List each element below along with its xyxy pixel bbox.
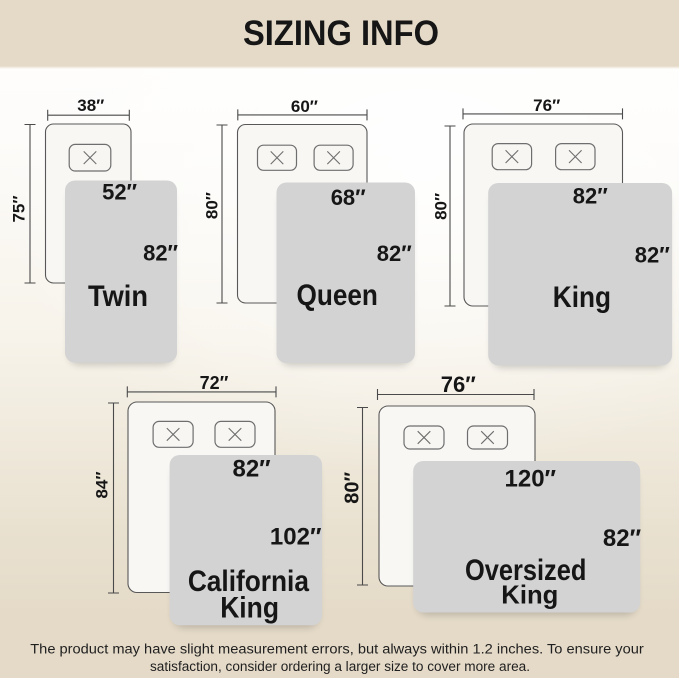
svg-text:King: King bbox=[501, 579, 558, 609]
svg-text:Twin: Twin bbox=[88, 280, 148, 313]
svg-text:Queen: Queen bbox=[297, 279, 378, 312]
svg-text:82″: 82″ bbox=[573, 183, 608, 208]
svg-text:82″: 82″ bbox=[143, 241, 178, 266]
svg-text:SIZING INFO: SIZING INFO bbox=[243, 14, 439, 53]
svg-text:60″: 60″ bbox=[291, 97, 318, 116]
svg-text:52″: 52″ bbox=[102, 180, 137, 205]
svg-text:82″: 82″ bbox=[377, 241, 412, 266]
svg-text:King: King bbox=[220, 591, 279, 624]
svg-text:82″: 82″ bbox=[232, 455, 271, 482]
svg-text:80″: 80″ bbox=[203, 192, 222, 219]
svg-text:80″: 80″ bbox=[432, 193, 451, 220]
svg-text:82″: 82″ bbox=[635, 242, 670, 267]
svg-text:80″: 80″ bbox=[342, 472, 364, 504]
svg-text:76″: 76″ bbox=[441, 372, 476, 397]
svg-text:38″: 38″ bbox=[77, 96, 104, 115]
svg-text:75″: 75″ bbox=[10, 195, 29, 222]
svg-text:102″: 102″ bbox=[270, 524, 322, 551]
svg-text:82″: 82″ bbox=[603, 525, 642, 552]
svg-text:King: King bbox=[553, 281, 611, 314]
svg-text:68″: 68″ bbox=[331, 185, 366, 210]
svg-text:76″: 76″ bbox=[533, 96, 560, 115]
svg-text:72″: 72″ bbox=[200, 373, 229, 393]
svg-text:satisfaction, consider orderin: satisfaction, consider ordering a larger… bbox=[150, 659, 530, 675]
svg-text:120″: 120″ bbox=[505, 465, 557, 492]
svg-text:84″: 84″ bbox=[93, 471, 112, 498]
svg-text:The product may have slight me: The product may have slight measurement … bbox=[30, 642, 644, 658]
